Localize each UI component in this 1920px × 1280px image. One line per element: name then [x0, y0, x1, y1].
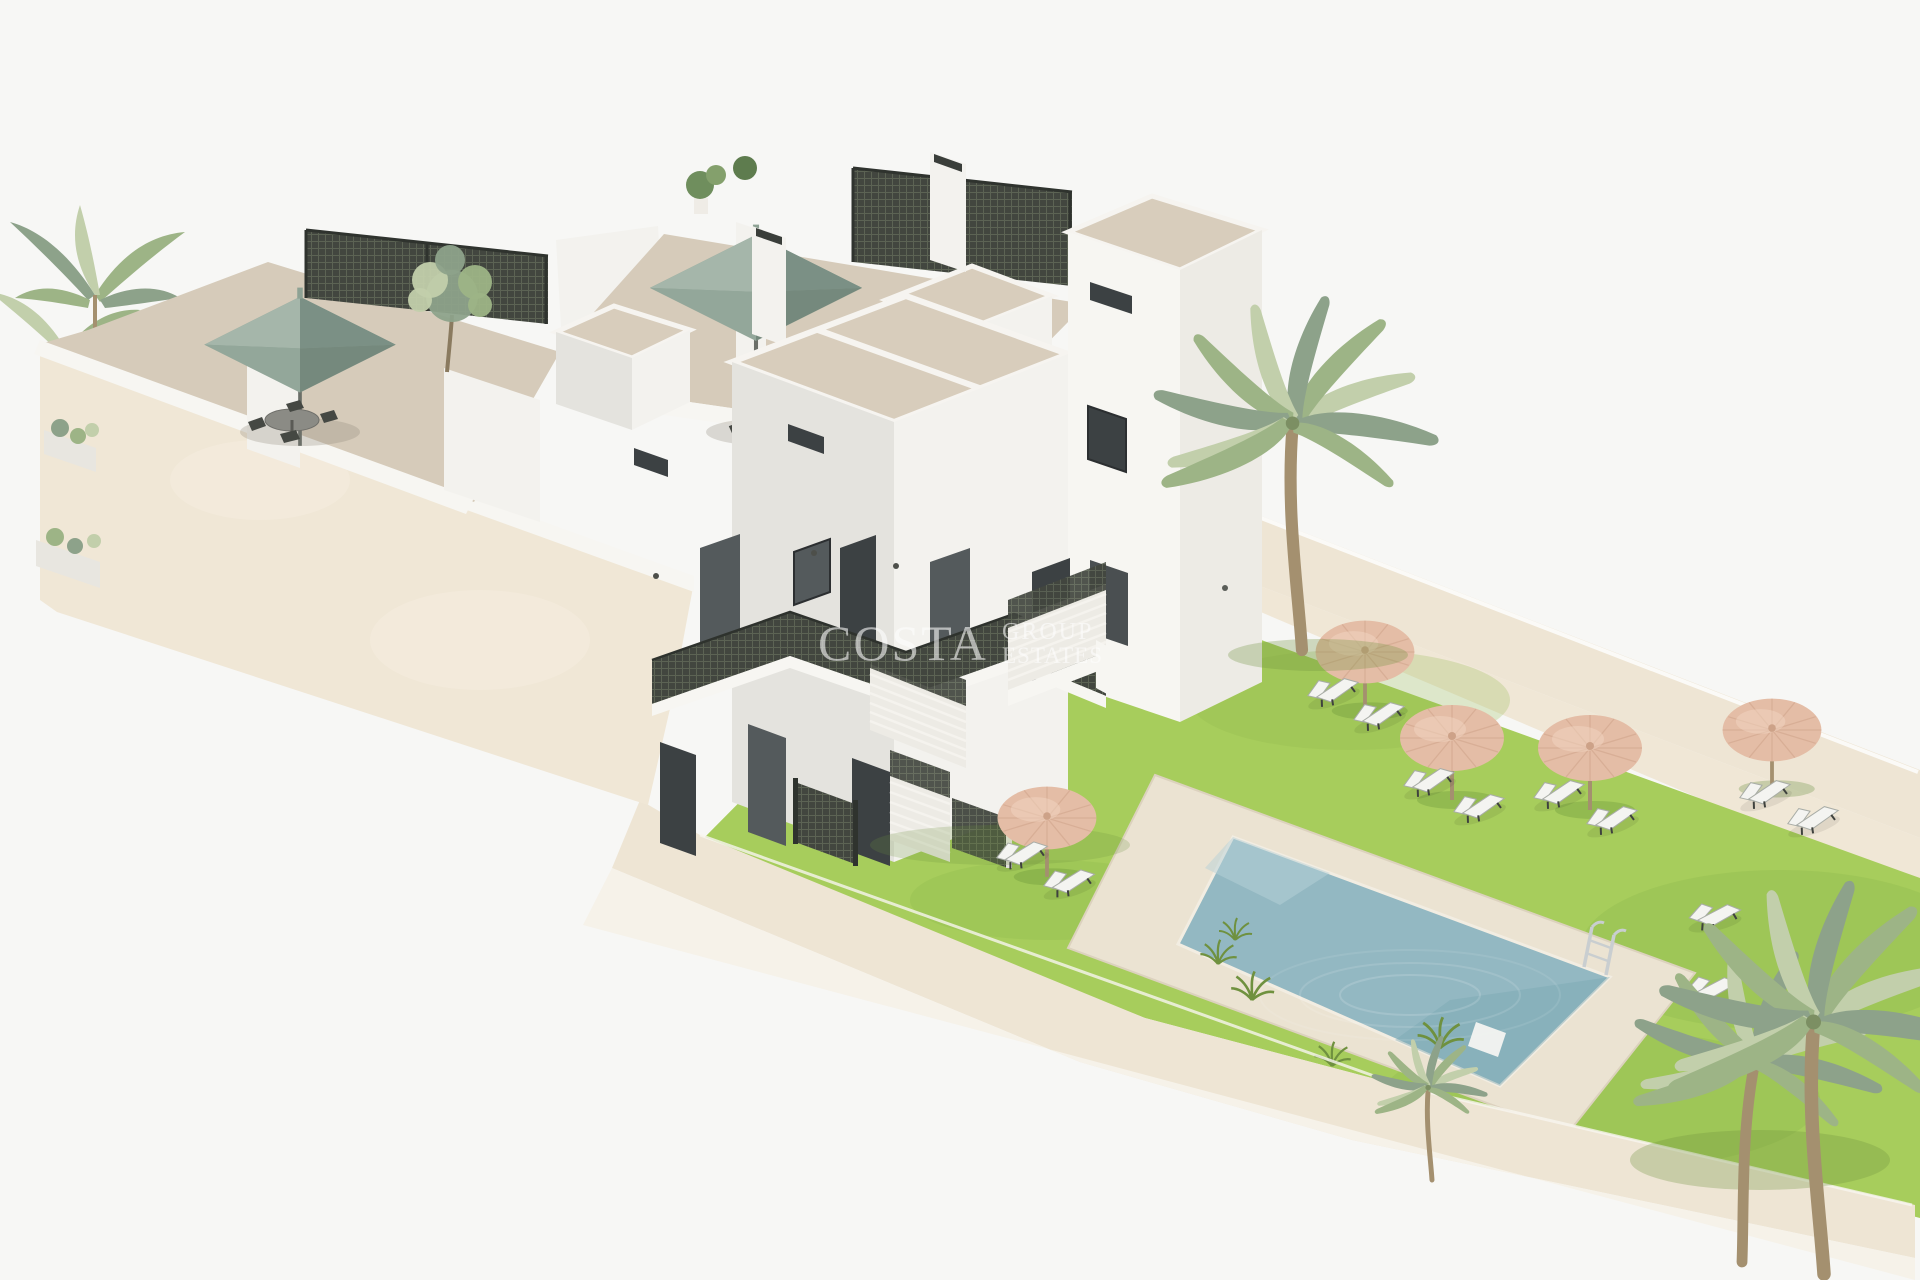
watermark: COSTA GROUP ESTATES: [818, 615, 1103, 671]
watermark-costa: COSTA: [818, 615, 988, 671]
wall-lamp: [811, 550, 817, 556]
watermark-estates: ESTATES: [1002, 643, 1103, 668]
wall-lamp: [1222, 585, 1228, 591]
wall-lamp: [893, 563, 899, 569]
architectural-render: COSTA GROUP ESTATES: [0, 0, 1920, 1280]
wall-lamp: [653, 573, 659, 579]
watermark-group: GROUP: [1002, 619, 1093, 645]
